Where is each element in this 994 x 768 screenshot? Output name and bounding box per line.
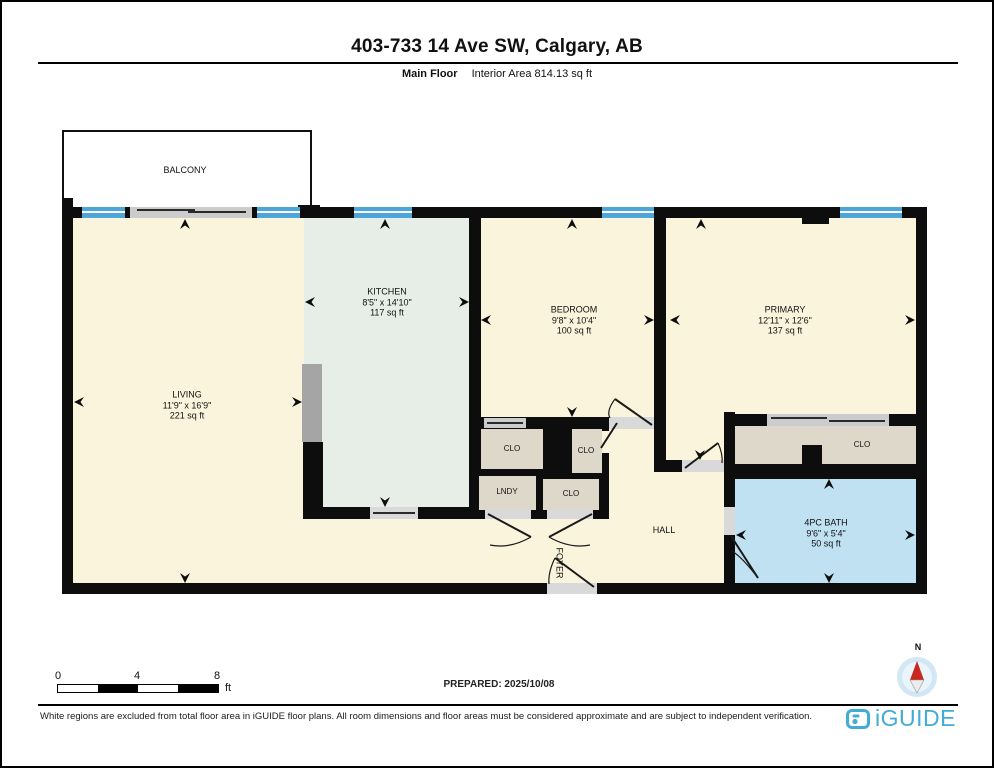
north-label: N bbox=[908, 642, 928, 652]
wall-left bbox=[62, 207, 73, 594]
sliding-door-panel bbox=[771, 417, 827, 419]
window bbox=[602, 207, 654, 218]
page-title: 403-733 14 Ave SW, Calgary, AB bbox=[2, 36, 992, 58]
sliding-door-panel bbox=[487, 422, 523, 424]
wall-right bbox=[916, 207, 927, 594]
room-closet4 bbox=[735, 426, 916, 464]
room-label-laundry: LNDY bbox=[496, 487, 517, 498]
room-label-closet3: CLO bbox=[563, 489, 579, 500]
header-divider bbox=[38, 62, 958, 64]
scale-unit: ft bbox=[225, 682, 231, 694]
interior-area: Interior Area 814.13 sq ft bbox=[472, 68, 592, 80]
closet2-opening bbox=[602, 431, 609, 453]
entry-door-opening bbox=[547, 583, 597, 594]
room-label-balcony: BALCONY bbox=[163, 165, 206, 176]
prepared-date: PREPARED: 2025/10/08 bbox=[379, 679, 619, 690]
wall-bedroom-primary bbox=[654, 218, 666, 472]
sliding-door-panel bbox=[188, 211, 246, 213]
room-label-closet4: CLO bbox=[854, 440, 870, 451]
room-label-hall: HALL bbox=[653, 525, 676, 536]
room-kitchen-floor bbox=[304, 218, 469, 507]
room-label-foyer: FOYER bbox=[554, 547, 565, 578]
sliding-door-panel bbox=[373, 512, 415, 514]
room-label-closet2: CLO bbox=[578, 446, 594, 457]
footer-disclaimer: White regions are excluded from total fl… bbox=[40, 711, 812, 722]
wall-segment bbox=[303, 442, 323, 509]
compass-icon-inner bbox=[902, 662, 932, 692]
bedroom-door-opening bbox=[609, 417, 654, 429]
room-label-bath: 4PC BATH9'6" x 5'4"50 sq ft bbox=[804, 517, 847, 549]
bath-door-opening bbox=[724, 507, 735, 535]
iguide-logo: iGUIDE bbox=[845, 705, 956, 732]
scale-tick-0: 0 bbox=[55, 670, 61, 682]
scale-tick-8: 8 bbox=[214, 670, 220, 682]
kitchen-island bbox=[302, 364, 322, 442]
wall-closet4-south bbox=[724, 464, 916, 479]
iguide-logo-icon bbox=[845, 707, 871, 731]
floor-plan-page: 403-733 14 Ave SW, Calgary, AB Main Floo… bbox=[0, 0, 994, 768]
floor-subtitle: Main FloorInterior Area 814.13 sq ft bbox=[2, 68, 992, 80]
room-label-bedroom: BEDROOM9'8" x 10'4"100 sq ft bbox=[551, 304, 598, 336]
sliding-door-panel bbox=[137, 209, 195, 211]
iguide-logo-text: iGUIDE bbox=[875, 705, 956, 732]
footer-divider bbox=[38, 704, 958, 706]
closet3-opening bbox=[547, 510, 593, 519]
wall-segment bbox=[298, 205, 320, 218]
wall-hall-bath bbox=[724, 412, 735, 583]
room-label-primary: PRIMARY12'11" x 12'6"137 sq ft bbox=[758, 304, 812, 336]
scale-bar bbox=[57, 684, 219, 693]
primary-door-opening bbox=[682, 460, 724, 472]
room-label-kitchen: KITCHEN8'5" x 14'10"117 sq ft bbox=[362, 286, 411, 318]
window bbox=[354, 207, 412, 218]
wall-bottom bbox=[62, 583, 927, 594]
wall-segment bbox=[802, 218, 829, 224]
laundry-opening bbox=[485, 510, 531, 519]
room-label-living: LIVING11'9" x 16'9"221 sq ft bbox=[163, 389, 212, 421]
room-label-closet1: CLO bbox=[504, 444, 520, 455]
sliding-door-panel bbox=[829, 420, 885, 422]
scale-tick-4: 4 bbox=[134, 670, 140, 682]
window bbox=[840, 207, 902, 218]
wall-segment bbox=[802, 445, 822, 464]
floor-name: Main Floor bbox=[402, 68, 458, 80]
window bbox=[82, 207, 125, 218]
window bbox=[257, 207, 300, 218]
